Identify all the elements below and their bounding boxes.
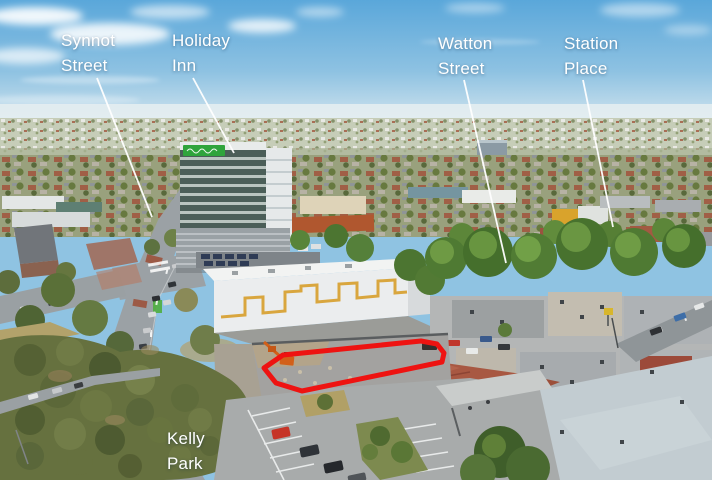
label-line-2: Park (167, 451, 205, 476)
label-line-2: Place (564, 56, 618, 81)
label-synnot-street: Synnot Street (61, 28, 115, 78)
label-station-place: Station Place (564, 31, 618, 81)
label-line-1: Holiday (172, 28, 230, 53)
horizon-band (0, 104, 712, 162)
label-line-2: Inn (172, 53, 230, 78)
label-line-1: Synnot (61, 28, 115, 53)
label-holiday-inn: Holiday Inn (172, 28, 230, 78)
label-line-1: Kelly (167, 426, 205, 451)
label-watton-street: Watton Street (438, 31, 492, 81)
label-line-1: Station (564, 31, 618, 56)
aerial-photo-canvas: Synnot Street Holiday Inn Watton Street … (0, 0, 712, 480)
label-line-2: Street (438, 56, 492, 81)
label-kelly-park: Kelly Park (167, 426, 205, 476)
label-line-2: Street (61, 53, 115, 78)
label-line-1: Watton (438, 31, 492, 56)
